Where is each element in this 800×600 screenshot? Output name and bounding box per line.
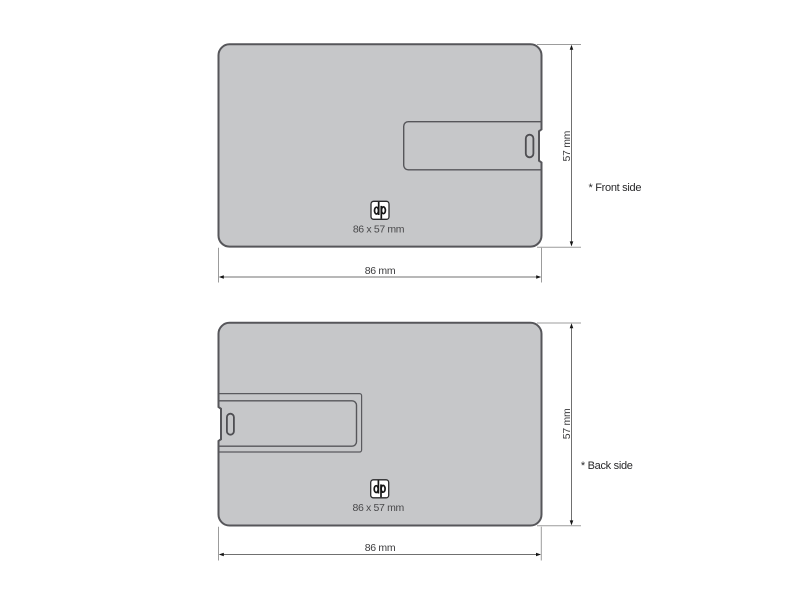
svg-text:86 mm: 86 mm [365,265,396,277]
svg-text:86 x 57 mm: 86 x 57 mm [353,224,405,236]
svg-text:57 mm: 57 mm [561,130,573,161]
svg-text:86 mm: 86 mm [365,542,396,554]
svg-text:* Front side: * Front side [589,182,642,194]
svg-text:* Back side: * Back side [581,460,633,472]
svg-text:57 mm: 57 mm [561,408,573,439]
svg-text:86 x 57 mm: 86 x 57 mm [353,502,405,514]
